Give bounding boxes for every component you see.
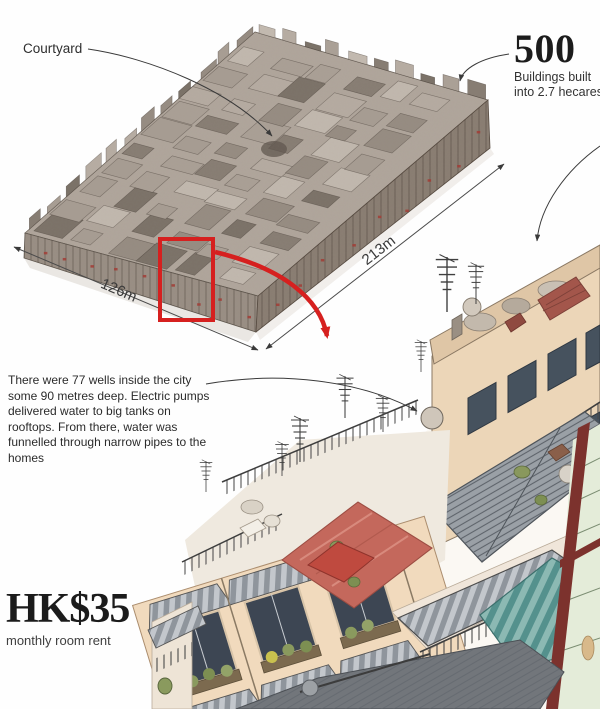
rent-caption: monthly room rent	[6, 633, 129, 648]
buildings-count-caption-line-1: Buildings built	[514, 70, 600, 85]
infographic-canvas: Courtyard 500 Buildings built into 2.7 h…	[0, 0, 600, 709]
rent-stat: HK$35 monthly room rent	[6, 588, 129, 648]
wells-leader-line	[206, 378, 417, 411]
highlight-rectangle	[160, 239, 213, 320]
buildings-stat-leader-line	[460, 54, 509, 81]
zoom-arrow	[215, 252, 327, 336]
rent-value: HK$35	[6, 588, 129, 630]
right-edge-leader-line	[537, 146, 600, 241]
dimension-line-width	[14, 247, 258, 350]
dimension-line-depth	[266, 164, 504, 349]
wells-note: There were 77 wells inside the city some…	[8, 373, 211, 466]
buildings-count-value: 500	[514, 28, 600, 70]
courtyard-leader-line	[88, 49, 272, 136]
buildings-count-caption-line-2: into 2.7 hecares	[514, 85, 600, 100]
courtyard-label: Courtyard	[23, 41, 82, 56]
buildings-count-stat: 500 Buildings built into 2.7 hecares	[514, 28, 600, 100]
